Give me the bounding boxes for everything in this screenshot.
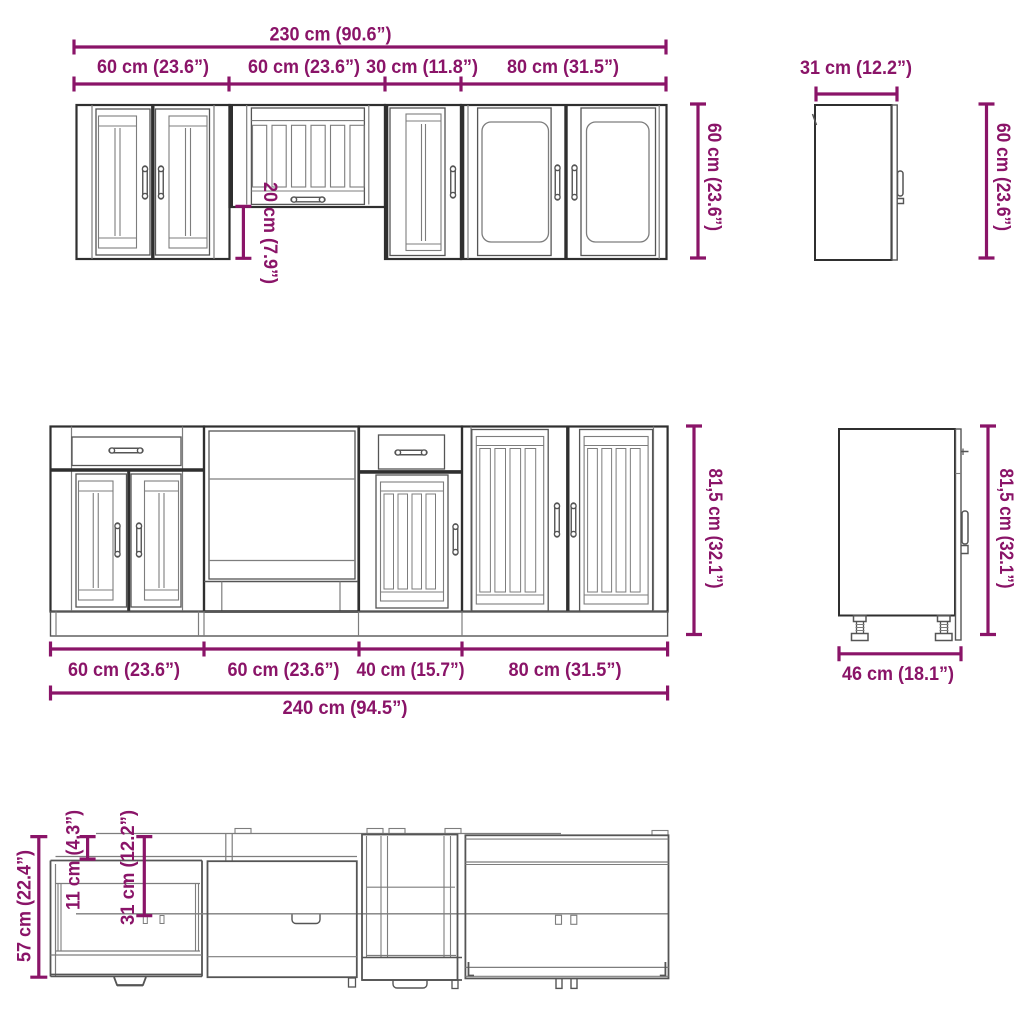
svg-text:230 cm (90.6”): 230 cm (90.6”): [270, 25, 392, 46]
svg-text:240 cm (94.5”): 240 cm (94.5”): [283, 698, 408, 719]
svg-text:20 cm (7.9”): 20 cm (7.9”): [259, 182, 280, 284]
svg-text:81,5 cm (32.1”): 81,5 cm (32.1”): [995, 469, 1016, 589]
svg-text:60 cm (23.6”): 60 cm (23.6”): [248, 57, 360, 78]
svg-text:60 cm (23.6”): 60 cm (23.6”): [992, 123, 1013, 231]
svg-text:80 cm (31.5”): 80 cm (31.5”): [509, 660, 622, 681]
svg-text:31 cm (12.2”): 31 cm (12.2”): [800, 58, 912, 79]
svg-text:81,5 cm (32.1”): 81,5 cm (32.1”): [704, 469, 725, 589]
svg-text:60 cm (23.6”): 60 cm (23.6”): [68, 660, 180, 681]
svg-text:60 cm (23.6”): 60 cm (23.6”): [228, 660, 340, 681]
svg-text:46 cm (18.1”): 46 cm (18.1”): [842, 664, 954, 685]
svg-text:11 cm (4.3”): 11 cm (4.3”): [64, 810, 85, 910]
svg-text:40 cm (15.7”): 40 cm (15.7”): [357, 660, 465, 681]
svg-text:30 cm (11.8”): 30 cm (11.8”): [366, 57, 478, 78]
svg-text:80 cm (31.5”): 80 cm (31.5”): [507, 57, 619, 78]
svg-text:60 cm (23.6”): 60 cm (23.6”): [703, 123, 724, 231]
svg-text:60 cm (23.6”): 60 cm (23.6”): [97, 57, 209, 78]
svg-text:57 cm (22.4”): 57 cm (22.4”): [15, 850, 36, 962]
svg-text:31 cm (12.2”): 31 cm (12.2”): [118, 810, 139, 925]
